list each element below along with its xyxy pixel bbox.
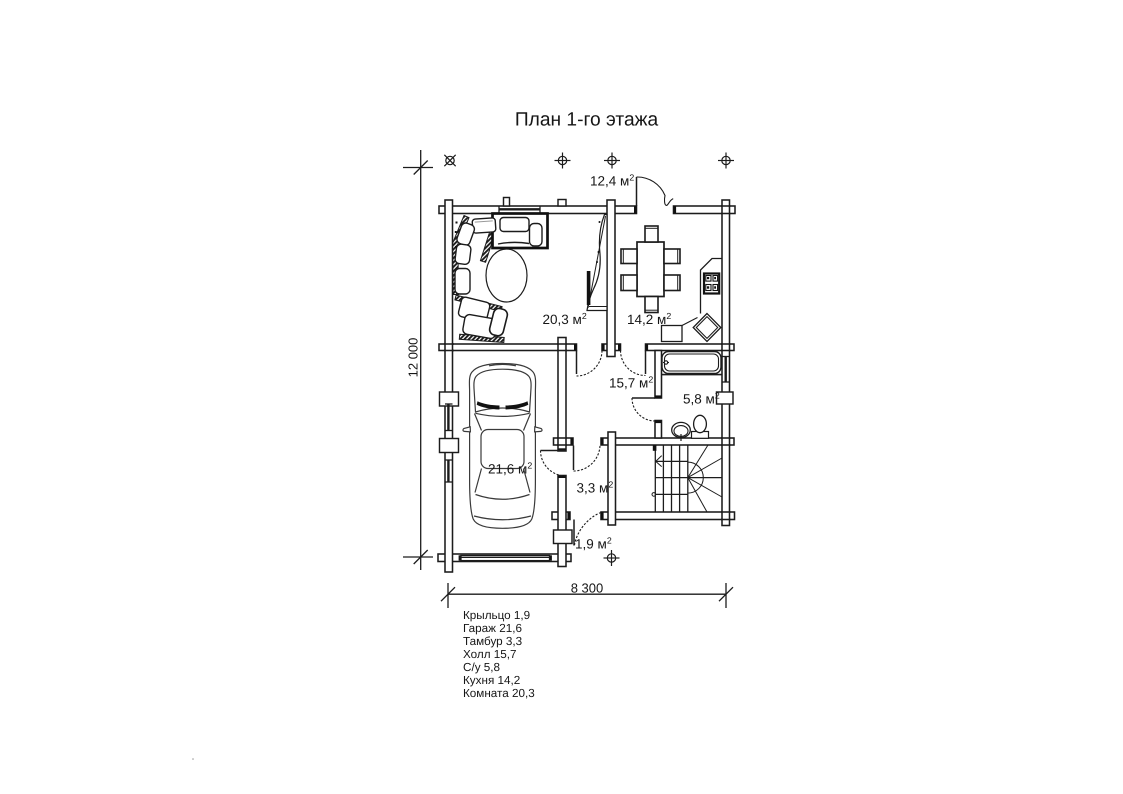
- svg-text:20,3 м2: 20,3 м2: [543, 311, 587, 327]
- svg-text:5,8 м2: 5,8 м2: [683, 391, 720, 407]
- svg-text:12 000: 12 000: [406, 338, 421, 378]
- svg-text:21,6 м2: 21,6 м2: [488, 461, 532, 477]
- svg-text:Крыльцо 1,9: Крыльцо 1,9: [463, 609, 530, 622]
- svg-text:1,9 м2: 1,9 м2: [575, 536, 612, 552]
- svg-text:Кухня 14,2: Кухня 14,2: [463, 674, 520, 687]
- svg-text:12,4 м2: 12,4 м2: [590, 173, 634, 189]
- svg-text:8 300: 8 300: [571, 581, 604, 596]
- svg-text:Тамбур 3,3: Тамбур 3,3: [463, 635, 522, 648]
- svg-text:15,7 м2: 15,7 м2: [609, 375, 653, 391]
- svg-text:Холл 15,7: Холл 15,7: [463, 648, 517, 661]
- svg-text:С/у 5,8: С/у 5,8: [463, 661, 500, 674]
- svg-text:Гараж 21,6: Гараж 21,6: [463, 622, 522, 635]
- svg-text:Комната 20,3: Комната 20,3: [463, 687, 535, 700]
- svg-text:3,3 м2: 3,3 м2: [577, 480, 614, 496]
- svg-text:План 1-го этажа: План 1-го этажа: [515, 110, 659, 131]
- svg-text:14,2 м2: 14,2 м2: [627, 311, 671, 327]
